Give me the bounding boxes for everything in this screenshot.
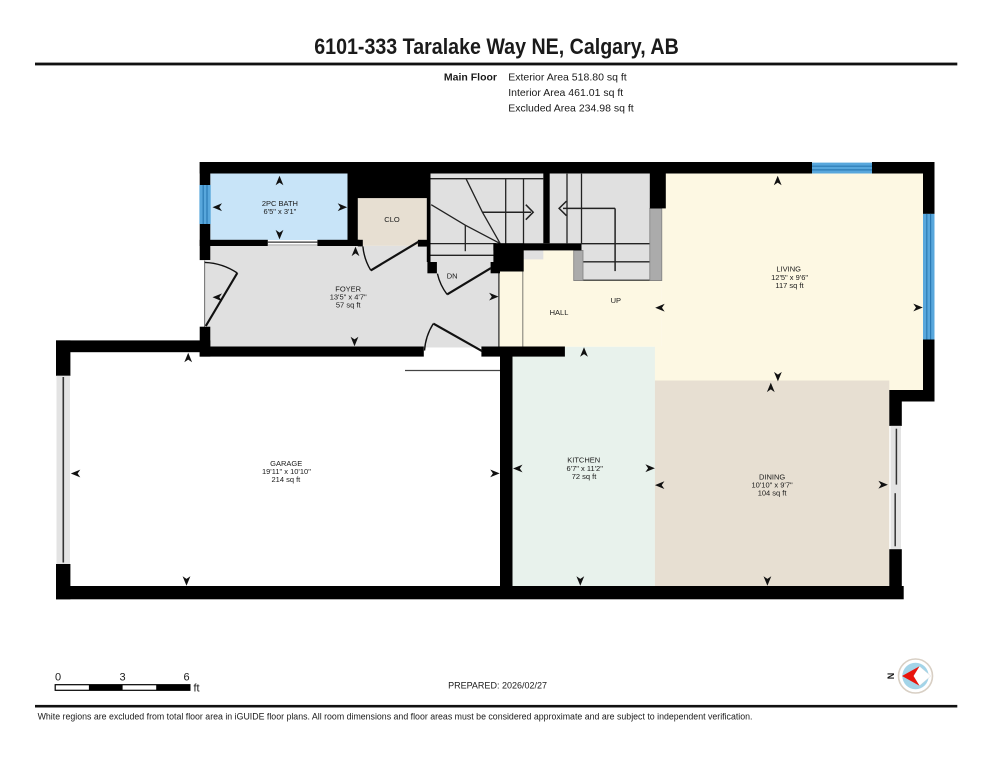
- svg-text:Exterior Area 518.80 sq ft: Exterior Area 518.80 sq ft: [508, 71, 627, 83]
- svg-text:Excluded Area 234.98 sq ft: Excluded Area 234.98 sq ft: [508, 102, 634, 114]
- svg-text:3: 3: [120, 672, 126, 684]
- svg-text:HALL: HALL: [550, 308, 569, 317]
- svg-text:6: 6: [184, 672, 190, 684]
- svg-text:57 sq ft: 57 sq ft: [336, 301, 362, 310]
- svg-text:6'5" x 3'1": 6'5" x 3'1": [264, 207, 297, 216]
- svg-text:6101-333 Taralake Way NE, Calg: 6101-333 Taralake Way NE, Calgary, AB: [314, 34, 679, 59]
- svg-text:ft: ft: [194, 682, 200, 694]
- svg-text:Main Floor: Main Floor: [444, 71, 497, 83]
- svg-text:214 sq ft: 214 sq ft: [272, 475, 302, 484]
- svg-text:CLO: CLO: [384, 215, 400, 224]
- svg-text:PREPARED: 2026/02/27: PREPARED: 2026/02/27: [448, 680, 547, 690]
- svg-text:72 sq ft: 72 sq ft: [572, 472, 598, 481]
- svg-text:104 sq ft: 104 sq ft: [758, 489, 788, 498]
- svg-text:N: N: [886, 673, 896, 680]
- svg-text:White regions are excluded fro: White regions are excluded from total fl…: [38, 712, 753, 722]
- svg-text:DN: DN: [447, 271, 458, 280]
- svg-text:UP: UP: [611, 296, 621, 305]
- svg-text:0: 0: [55, 672, 61, 684]
- svg-text:117 sq ft: 117 sq ft: [775, 281, 804, 290]
- svg-text:Interior Area 461.01 sq ft: Interior Area 461.01 sq ft: [508, 87, 623, 99]
